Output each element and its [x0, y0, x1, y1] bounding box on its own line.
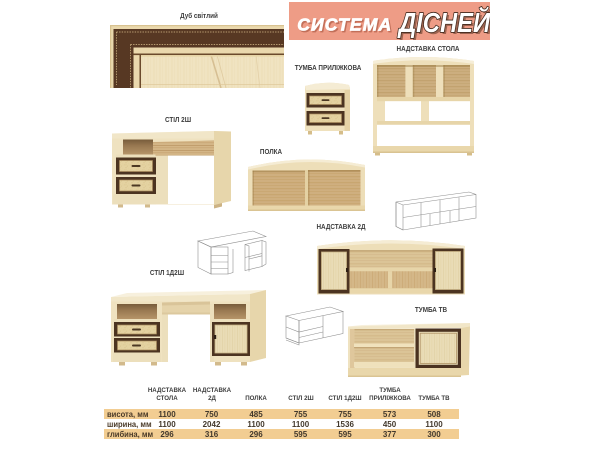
svg-text:СИСТЕМА: СИСТЕМА	[297, 15, 392, 35]
svg-text:ДІСНЕЙ: ДІСНЕЙ	[397, 6, 490, 38]
